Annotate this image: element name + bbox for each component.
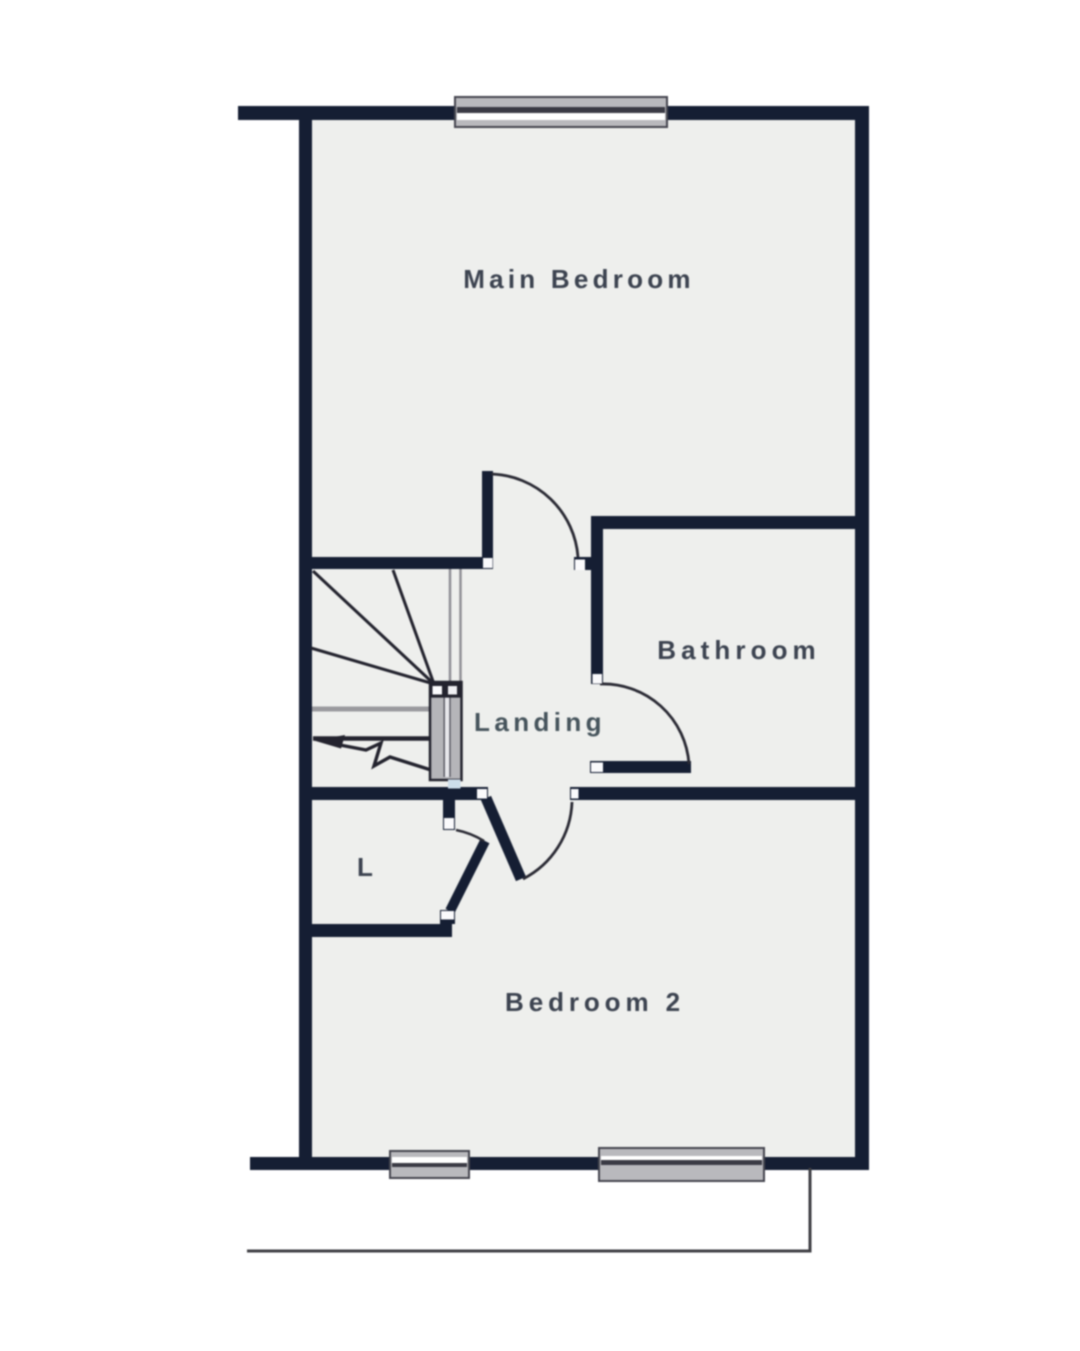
svg-text:Main Bedroom: Main Bedroom <box>463 264 695 294</box>
svg-text:Bathroom: Bathroom <box>657 635 821 665</box>
svg-text:Landing: Landing <box>474 707 606 737</box>
svg-text:Bedroom 2: Bedroom 2 <box>505 987 685 1017</box>
svg-text:L: L <box>357 852 373 882</box>
